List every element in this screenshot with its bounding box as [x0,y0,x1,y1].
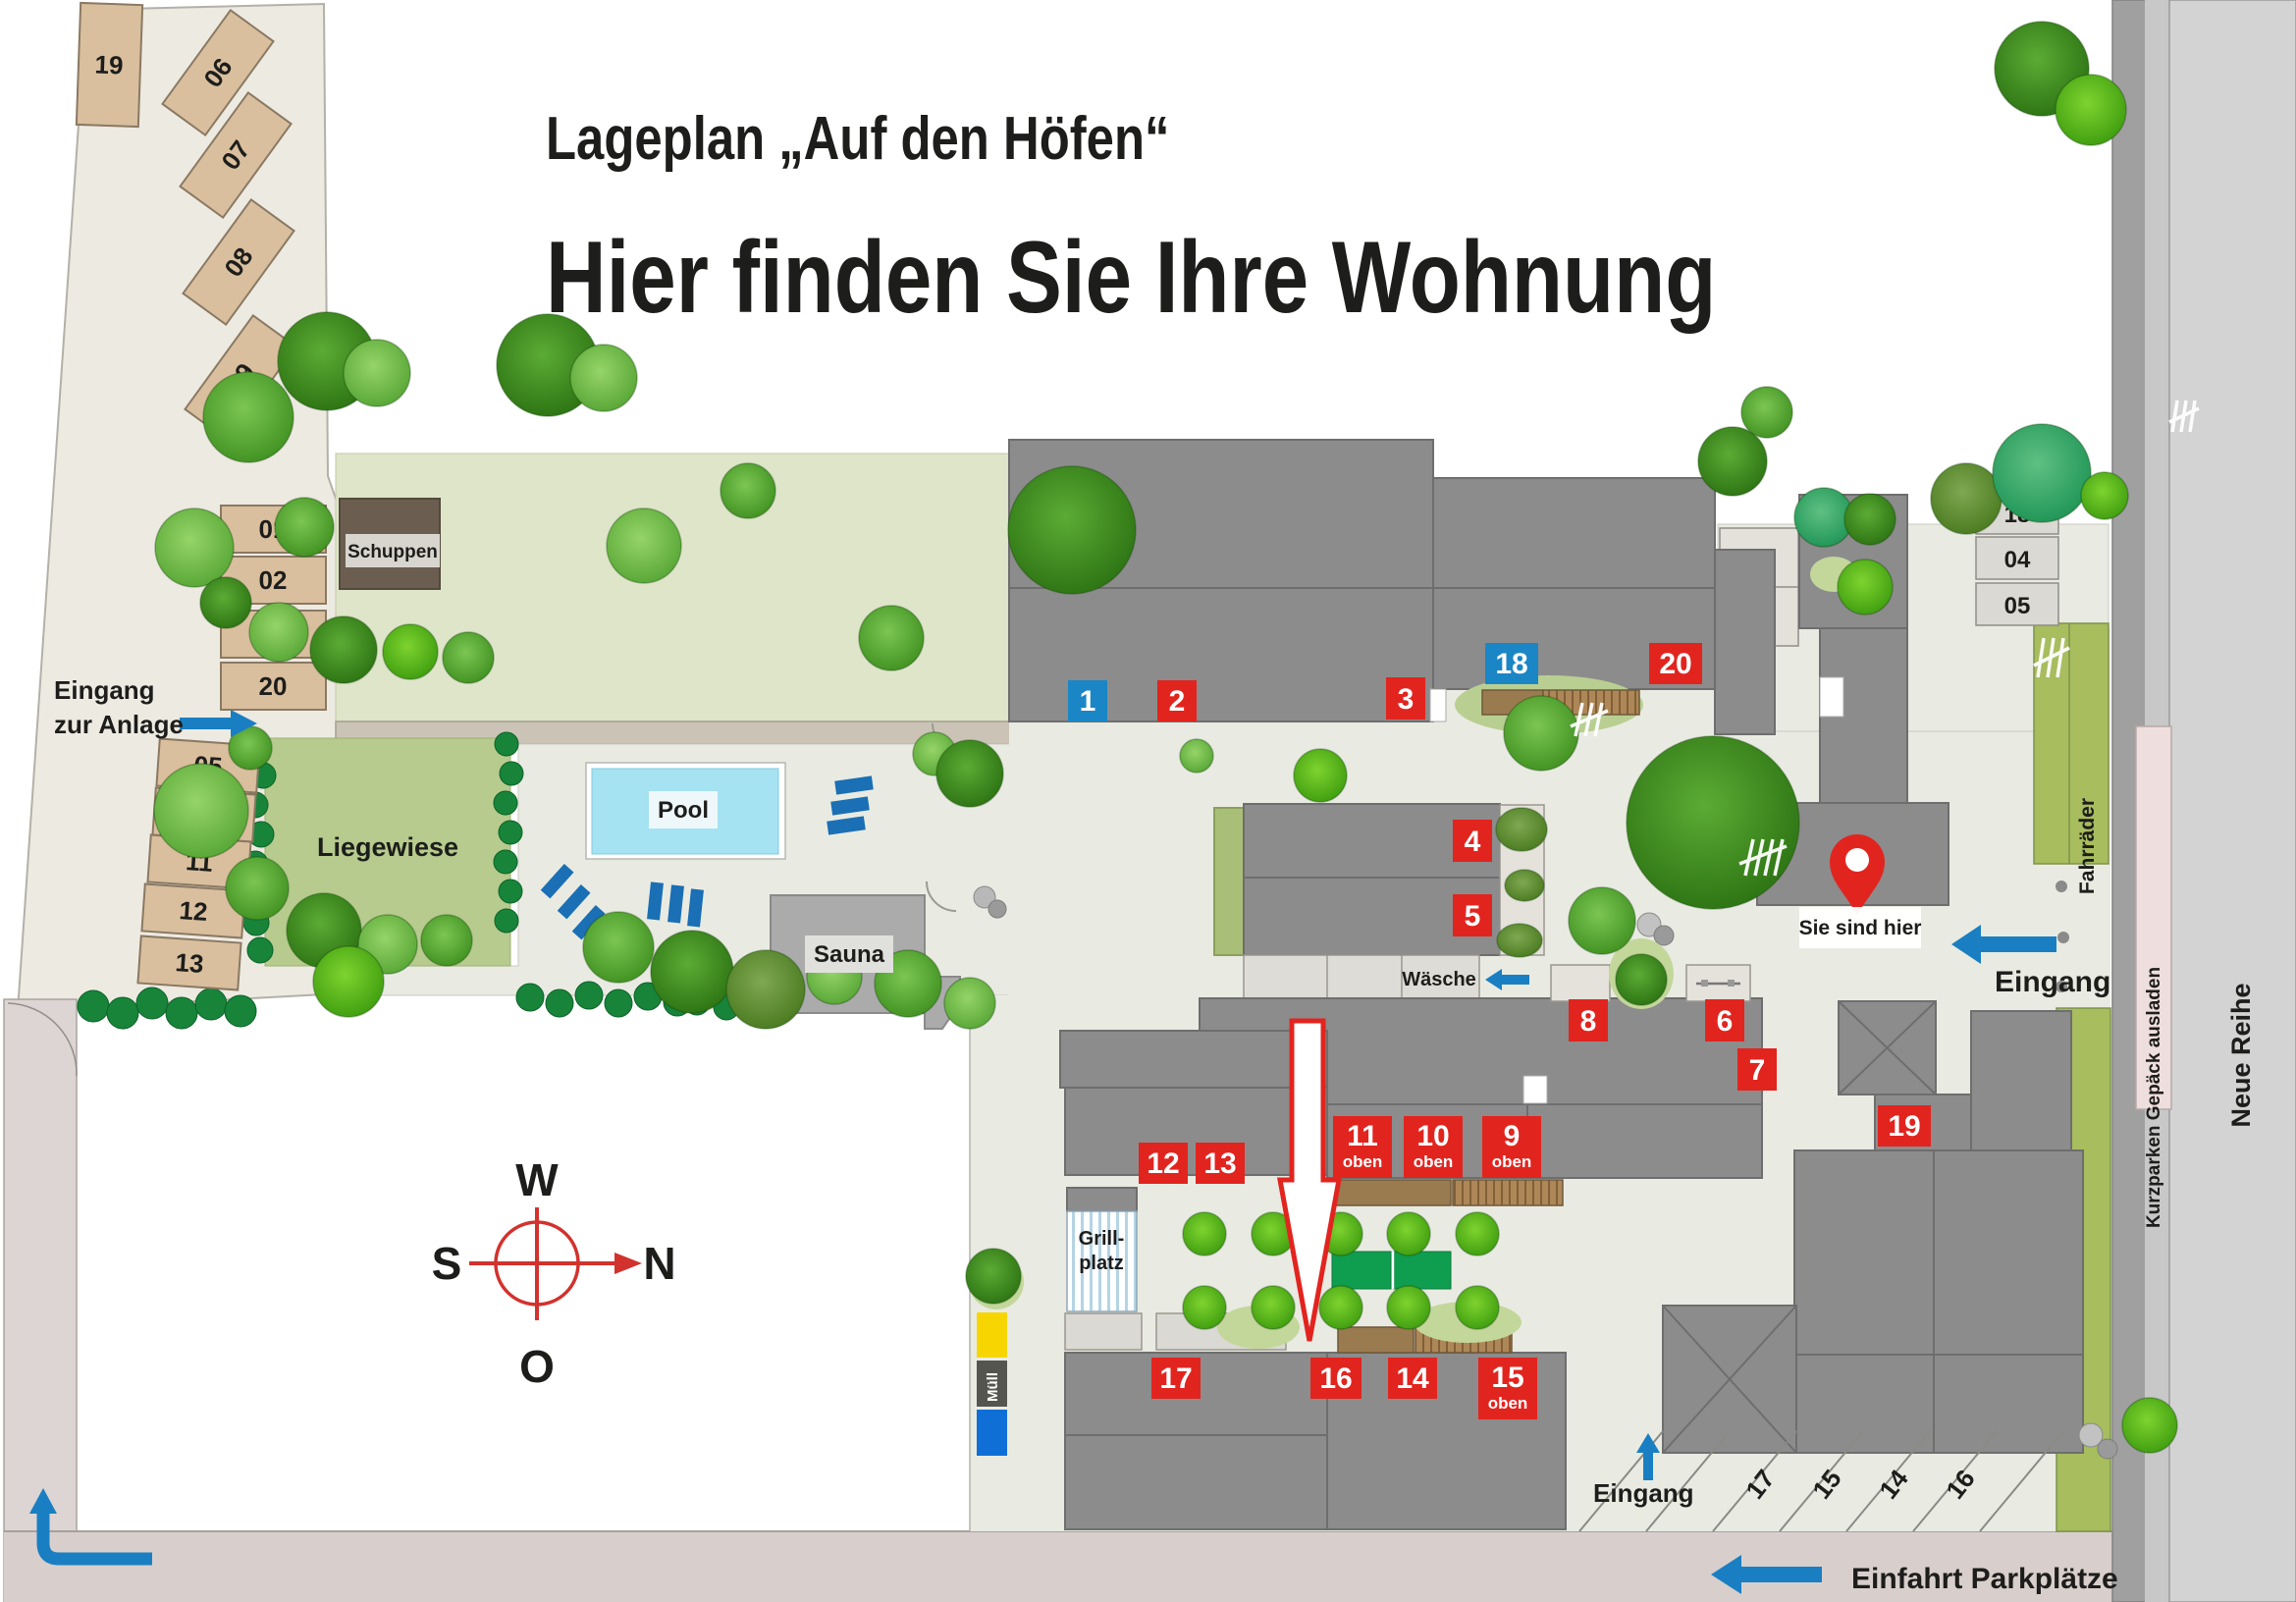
road-bottom [4,1531,2169,1602]
grill-roof [1067,1188,1137,1211]
tree [154,764,248,858]
unit-marker-1: 1 [1068,680,1107,721]
tree [203,372,294,462]
svg-text:11: 11 [1347,1120,1378,1152]
bench-box [1686,965,1750,1001]
svg-text:oben: oben [1488,1394,1528,1413]
tree [1627,736,1799,909]
plant [1496,808,1547,851]
building-door-notch [1523,1076,1547,1103]
svg-text:oben: oben [1343,1152,1383,1171]
compass-o: O [519,1341,555,1392]
parking-stall-04e: 04 [1976,537,2058,579]
bollard [2056,881,2067,892]
building-east-3 [1971,1011,2071,1150]
unit-marker-10-oben: 10 oben [1404,1116,1463,1178]
patio-box [1551,965,1610,1001]
unit-marker-7: 7 [1737,1048,1777,1091]
stone [2098,1439,2117,1459]
compass-s: S [432,1238,462,1289]
neue-reihe-label: Neue Reihe [2226,983,2256,1127]
muell-label: Müll [985,1372,1001,1402]
entrance-south-label: Eingang [1593,1478,1694,1508]
bollard [2057,932,2069,943]
tree [1504,696,1578,771]
unit-marker-20: 20 [1649,643,1702,684]
tree [859,606,924,670]
svg-text:Schuppen: Schuppen [347,542,438,562]
tree [1387,1212,1430,1255]
waste-box-blue [977,1410,1007,1456]
table-tennis [1332,1252,1451,1289]
page-subtitle: Lageplan „Auf den Höfen“ [546,105,1169,173]
deck [1338,1327,1414,1353]
tree [249,603,308,662]
tree [966,1249,1021,1304]
tree [583,912,654,983]
tree [944,978,995,1029]
parking-stall-20: 20 [221,663,326,710]
kurzparken-label: Kurzparken Gepäck ausladen [2144,967,2164,1228]
grill-label-2: platz [1079,1253,1124,1274]
tree [344,340,410,406]
unit-marker-16: 16 [1310,1358,1362,1399]
unit-marker-14: 14 [1388,1358,1437,1399]
svg-text:Pool: Pool [658,797,709,824]
svg-text:4: 4 [1465,826,1481,858]
tree [200,577,251,628]
svg-text:02: 02 [259,565,288,595]
svg-text:19: 19 [94,50,124,80]
svg-text:3: 3 [1398,683,1415,716]
svg-text:7: 7 [1749,1054,1766,1087]
tree [1698,427,1767,496]
area-lawn [336,454,1013,730]
svg-text:19: 19 [1888,1110,1920,1143]
waesche-label: Wäsche [1402,969,1476,990]
building-center-row2 [1060,1031,1327,1088]
tree [155,508,234,587]
tree [1456,1212,1499,1255]
unit-marker-8: 8 [1569,999,1608,1041]
tree [2056,75,2126,145]
svg-text:05: 05 [2004,593,2031,619]
tree [1183,1212,1226,1255]
deck [1327,1180,1451,1205]
tree [421,915,472,966]
svg-text:8: 8 [1580,1005,1597,1038]
waste-box-yellow [977,1312,1007,1358]
tree [1183,1286,1226,1329]
building-door-notch [1430,689,1446,721]
svg-text:15: 15 [1491,1362,1523,1394]
building-center-row4 [1327,1104,1762,1178]
street-neue-reihe [2169,0,2296,1602]
svg-text:10: 10 [1416,1120,1449,1152]
pin-dot [1845,848,1869,872]
unit-marker-18: 18 [1485,643,1538,684]
tree [651,931,733,1013]
stone [988,900,1006,918]
compass-n: N [643,1238,675,1289]
svg-text:12: 12 [179,895,209,927]
unit-marker-15-oben: 15 oben [1478,1358,1537,1419]
tree [226,857,289,920]
unit-marker-6: 6 [1705,999,1744,1041]
page-title: Hier finden Sie Ihre Wohnung [546,221,1716,335]
svg-text:13: 13 [175,947,205,979]
tree [1569,887,1635,954]
plant [1497,924,1542,957]
unit-marker-4: 4 [1453,820,1492,862]
svg-text:04: 04 [2004,547,2031,573]
entrance-complex-label-2: zur Anlage [54,710,184,739]
terrace-south-1 [1065,1313,1142,1350]
unit-marker-17: 17 [1151,1358,1201,1399]
tree [313,946,384,1017]
einfahrt-label: Einfahrt Parkplätze [1851,1563,2118,1595]
tree [310,616,377,683]
svg-text:12: 12 [1147,1148,1179,1180]
svg-text:oben: oben [1492,1152,1532,1171]
unit-marker-12: 12 [1139,1143,1188,1184]
building-x-a [1839,1001,1936,1095]
parking-stall-05e: 05 [1976,583,2058,625]
tree [1294,749,1347,802]
tree [1741,387,1792,438]
stone [1654,926,1674,945]
tree [1844,494,1896,545]
svg-text:oben: oben [1414,1152,1454,1171]
svg-text:18: 18 [1495,648,1527,680]
svg-text:16: 16 [1319,1362,1352,1395]
site-plan: 19 06 07 08 09 01 02 03 [0,0,2296,1602]
stairs [1453,1180,1563,1205]
tree [275,498,334,557]
svg-text:1: 1 [1080,685,1096,718]
parking-stall-13w: 13 [137,936,240,990]
tree [721,463,775,518]
tree [1008,466,1136,594]
tree [1931,463,2002,534]
plant [1505,870,1544,901]
svg-text:Sauna: Sauna [814,941,885,968]
building-north-2-wing [1715,550,1775,734]
tree [1838,560,1893,614]
svg-text:5: 5 [1465,900,1481,933]
svg-text:20: 20 [259,671,288,701]
entrance-east-label: Eingang [1995,966,2110,998]
waste-station: Müll [977,1312,1007,1456]
svg-text:9: 9 [1504,1120,1521,1152]
tree [383,624,438,679]
tree [1180,739,1213,773]
sauna-label: Sauna [805,935,893,973]
green-strip-west-of-house [1214,808,1244,955]
tree [1456,1286,1499,1329]
unit-marker-19: 19 [1878,1105,1931,1147]
tree [936,740,1003,807]
tree [607,508,681,583]
svg-text:2: 2 [1169,685,1186,718]
you-are-here-label: Sie sind hier [1799,917,1922,939]
tree [1993,424,2091,522]
unit-marker-13: 13 [1196,1143,1245,1184]
parking-stall-19: 19 [77,3,142,127]
pool-label: Pool [649,791,718,828]
unit-marker-11-oben: 11 oben [1333,1116,1392,1178]
fahrraeder-label: Fahrräder [2076,798,2099,894]
unit-marker-2: 2 [1157,680,1197,721]
tree [2081,472,2128,519]
svg-text:6: 6 [1717,1005,1734,1038]
unit-marker-3: 3 [1386,677,1425,720]
unit-marker-5: 5 [1453,894,1492,936]
building-x-b [1663,1306,1796,1453]
svg-text:17: 17 [1159,1362,1192,1395]
liegewiese-label: Liegewiese [317,832,458,862]
tree [1616,954,1667,1005]
building-door-notch [1820,677,1843,717]
site-plan-svg: 19 06 07 08 09 01 02 03 [0,0,2296,1602]
tree [570,345,637,411]
tree [1319,1286,1362,1329]
tree [443,632,494,683]
schuppen-label: Schuppen [346,534,440,567]
tree [2122,1398,2177,1453]
tree [1252,1286,1295,1329]
building-east-big [1794,1150,2083,1453]
compass-w: W [515,1154,559,1205]
unit-marker-9-oben: 9 oben [1482,1116,1541,1178]
tree [726,950,805,1029]
entrance-complex-label-1: Eingang [54,675,155,705]
grill-label-1: Grill- [1079,1228,1125,1250]
svg-text:14: 14 [1396,1362,1429,1395]
svg-text:13: 13 [1203,1148,1236,1180]
svg-text:20: 20 [1659,648,1691,680]
tree [1387,1286,1430,1329]
